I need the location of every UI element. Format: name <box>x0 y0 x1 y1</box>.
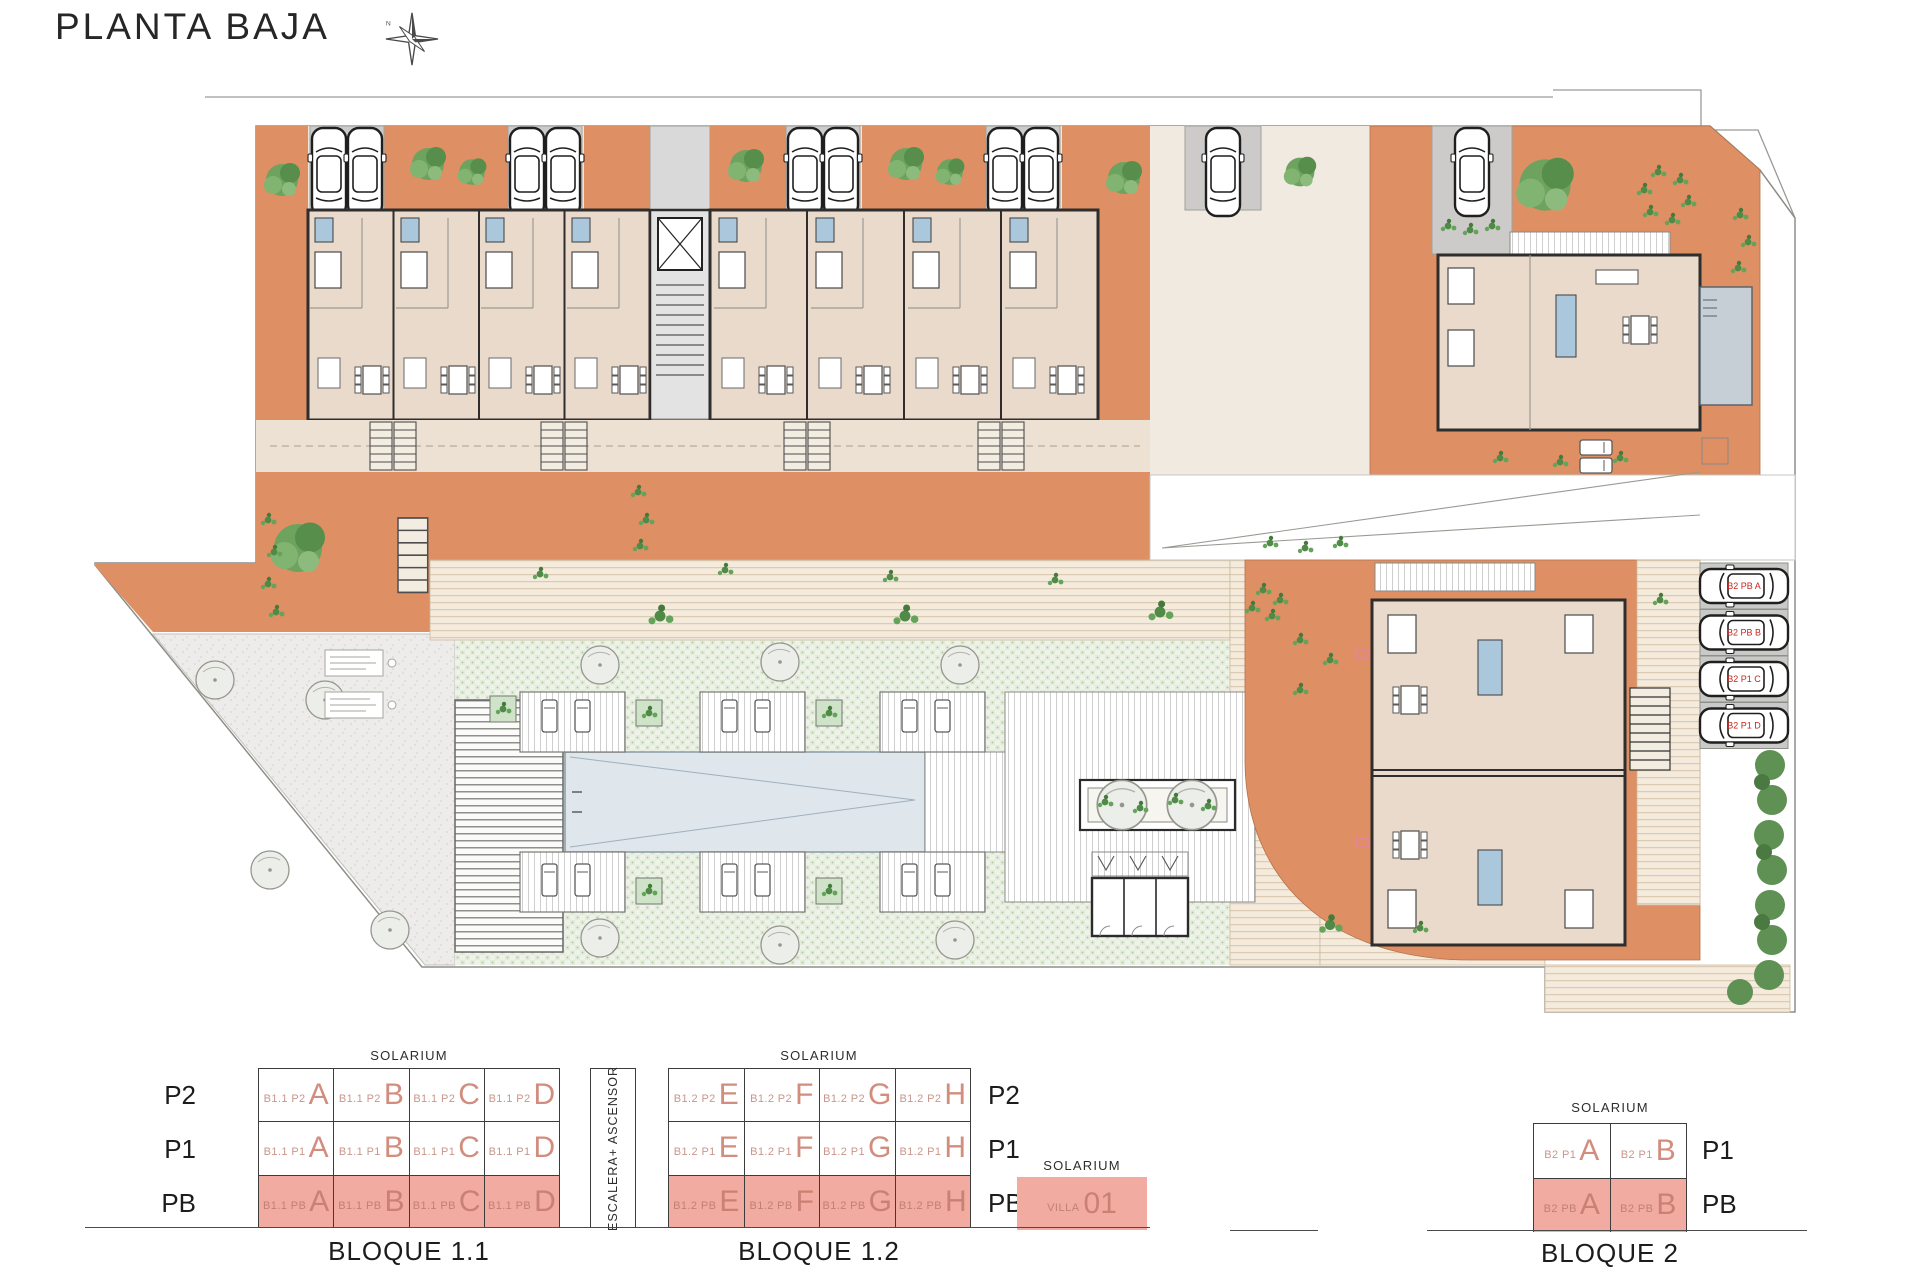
bloque-2-table: B2 P1A B2 P1B B2 PBA B2 PBB <box>1533 1123 1687 1232</box>
solarium-label-b2: SOLARIUM <box>1571 1100 1649 1115</box>
unit-b11-pb-a: B1.1 PBA <box>259 1176 333 1228</box>
site-plan: B2 PB A B2 PB B B2 P1 C B2 P1 D <box>0 0 1920 1045</box>
walkway-band <box>256 420 1150 472</box>
row-label-p1-right: P1 <box>988 1134 1044 1165</box>
unit-b12-p1-f: B1.2 P1F <box>744 1122 820 1174</box>
unit-b11-p1-a: B1.1 P1A <box>259 1122 333 1174</box>
unit-b11-pb-d: B1.1 PBD <box>484 1176 559 1228</box>
unit-b12-p1-h: B1.2 P1H <box>895 1122 971 1174</box>
bloque-1-1 <box>256 126 650 420</box>
bloque-2-ext-stair <box>1630 688 1670 770</box>
unit-b11-p2-b: B1.1 P2B <box>333 1069 408 1121</box>
b12-row-p1: B1.2 P1E B1.2 P1F B1.2 P1G B1.2 P1H <box>669 1121 970 1174</box>
unit-b12-p2-e: B1.2 P2E <box>669 1069 744 1121</box>
villa-01-cell: VILLA01 <box>1017 1177 1147 1230</box>
unit-b11-pb-c: B1.1 PBC <box>409 1176 484 1228</box>
unit-b2-p1-a: B2 P1A <box>1534 1124 1610 1178</box>
unit-b12-p2-h: B1.2 P2H <box>895 1069 971 1121</box>
legend-baseline-mid <box>1230 1230 1318 1231</box>
parking-label: B2 PB A <box>1727 581 1761 591</box>
villa-01-plot <box>1370 126 1760 475</box>
unit-b11-p2-c: B1.1 P2C <box>409 1069 484 1121</box>
row-label-p1-left: P1 <box>140 1134 196 1165</box>
bloque-1-1-title: BLOQUE 1.1 <box>328 1236 490 1267</box>
escalera-ascensor-cell: ESCALERA+ ASCENSOR <box>590 1068 636 1228</box>
unit-b11-pb-b: B1.1 PBB <box>333 1176 408 1228</box>
unit-b12-pb-f: B1.2 PBF <box>744 1176 820 1228</box>
unit-b12-pb-h: B1.2 PBH <box>895 1176 971 1228</box>
bloque-1-2-table: B1.2 P2E B1.2 P2F B1.2 P2G B1.2 P2H B1.2… <box>668 1068 971 1228</box>
b11-row-pb: B1.1 PBA B1.1 PBB B1.1 PBC B1.1 PBD <box>259 1175 559 1228</box>
legend-baseline-right <box>1427 1230 1807 1231</box>
unit-b12-pb-e: B1.2 PBE <box>669 1176 744 1228</box>
toilets-block <box>1092 852 1188 936</box>
legend-baseline-left <box>85 1227 1150 1228</box>
row-label-b2-p1: P1 <box>1702 1135 1758 1166</box>
b2-row-pb: B2 PBA B2 PBB <box>1534 1178 1686 1233</box>
unit-b12-p1-e: B1.2 P1E <box>669 1122 744 1174</box>
villa-pergola-strip <box>1510 232 1670 256</box>
bloque-2-title: BLOQUE 2 <box>1541 1238 1679 1269</box>
unit-b2-pb-a: B2 PBA <box>1534 1179 1610 1233</box>
unit-b11-p2-a: B1.1 P2A <box>259 1069 333 1121</box>
parking-label: B2 P1 C <box>1727 674 1761 684</box>
unit-b12-pb-g: B1.2 PBG <box>819 1176 895 1228</box>
unit-b12-p2-g: B1.2 P2G <box>819 1069 895 1121</box>
pool <box>565 752 925 852</box>
row-label-pb-left: PB <box>140 1188 196 1219</box>
unit-b11-p2-d: B1.1 P2D <box>484 1069 559 1121</box>
unit-b11-p1-c: B1.1 P1C <box>409 1122 484 1174</box>
unit-b12-p2-f: B1.2 P2F <box>744 1069 820 1121</box>
access-drive <box>1150 472 1795 560</box>
unit-b2-p1-b: B2 P1B <box>1610 1124 1687 1178</box>
b12-row-pb: B1.2 PBE B1.2 PBF B1.2 PBG B1.2 PBH <box>669 1175 970 1228</box>
villa-car-icon <box>1451 128 1493 216</box>
row-label-p2-right: P2 <box>988 1080 1044 1111</box>
b2-row-p1: B2 P1A B2 P1B <box>1534 1124 1686 1178</box>
solarium-label-b11: SOLARIUM <box>370 1048 448 1063</box>
bloque-1-1-table: B1.1 P2A B1.1 P2B B1.1 P2C B1.1 P2D B1.1… <box>258 1068 560 1228</box>
b11-row-p2: B1.1 P2A B1.1 P2B B1.1 P2C B1.1 P2D <box>259 1069 559 1121</box>
parking-row: B2 PB A B2 PB B B2 P1 C B2 P1 D <box>1700 563 1788 749</box>
unit-b11-p1-d: B1.1 P1D <box>484 1122 559 1174</box>
row-label-b2-pb: PB <box>1702 1189 1758 1220</box>
solarium-label-b12: SOLARIUM <box>780 1048 858 1063</box>
solarium-label-villa: SOLARIUM <box>1043 1158 1121 1173</box>
row-label-p2-left: P2 <box>140 1080 196 1111</box>
parking-label: B2 PB B <box>1727 628 1761 638</box>
unit-b12-p1-g: B1.2 P1G <box>819 1122 895 1174</box>
unit-b2-pb-b: B2 PBB <box>1610 1179 1687 1233</box>
b11-row-p1: B1.1 P1A B1.1 P1B B1.1 P1C B1.1 P1D <box>259 1121 559 1174</box>
b12-row-p2: B1.2 P2E B1.2 P2F B1.2 P2G B1.2 P2H <box>669 1069 970 1121</box>
villa-pool <box>1700 287 1752 405</box>
floor-plan-page: PLANTA BAJA N <box>0 0 1920 1280</box>
bloque-1-2 <box>710 126 1150 420</box>
parking-label: B2 P1 D <box>1727 721 1761 731</box>
villa-bathroom <box>1556 295 1576 357</box>
bloque-1-2-title: BLOQUE 1.2 <box>738 1236 900 1267</box>
unit-b11-p1-b: B1.1 P1B <box>333 1122 408 1174</box>
